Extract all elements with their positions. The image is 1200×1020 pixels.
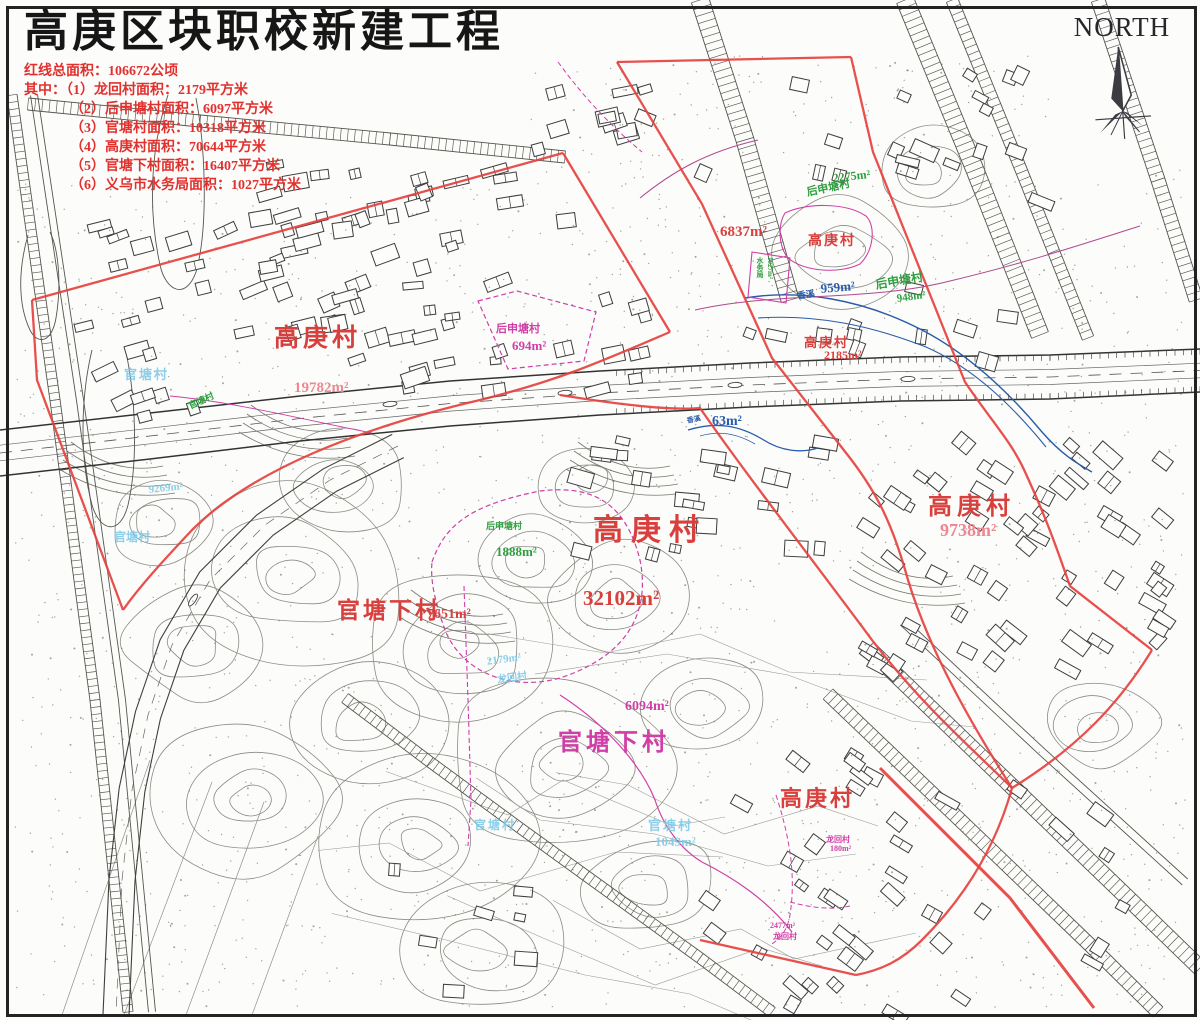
map-label: 1027m² <box>766 257 774 279</box>
map-label: 2185m² <box>824 348 862 363</box>
map-label: 9738m² <box>940 520 996 541</box>
legend-item: （2）后申塘村面积：6097平方米 <box>24 100 544 119</box>
map-label: 32102m² <box>583 586 659 611</box>
map-label: 水务局 <box>755 257 765 278</box>
legend-item: （5）官塘下村面积：16407平方米 <box>24 157 544 176</box>
map-label: 龙回村 <box>773 931 797 942</box>
map-label: 官塘村 <box>114 528 150 545</box>
legend-total: 红线总面积：106672公顷 <box>24 62 544 81</box>
map-label: 高庚村 <box>274 318 361 354</box>
map-label: 高庚村 <box>928 486 1015 521</box>
map-label: 6094m² <box>625 699 669 715</box>
legend-item: （4）高庚村面积：70644平方米 <box>24 138 544 157</box>
map-label: 官塘下村 <box>558 722 670 757</box>
map-label: 63m² <box>712 414 742 430</box>
map-label: 高庚村 <box>593 505 707 549</box>
page-title: 高庚区块职校新建工程 <box>24 8 544 56</box>
map-label: 19782m² <box>294 380 349 397</box>
map-label: 1888m² <box>496 544 537 560</box>
map-label: 694m² <box>512 338 546 354</box>
map-label: 959m² <box>820 278 855 297</box>
legend-item: （6）义乌市水务局面积：1027平方米 <box>24 176 544 195</box>
map-label: 官塘村 <box>648 815 693 834</box>
map-label: 高庚村 <box>780 781 855 813</box>
map-label: 后申塘村 <box>486 519 522 532</box>
map-sheet: 高庚区块职校新建工程 红线总面积：106672公顷 其中：（1）龙回村面积：21… <box>0 0 1200 1020</box>
north-compass-icon <box>1083 43 1161 139</box>
map-label: 官塘村 <box>124 364 169 383</box>
map-label: 后申塘村 <box>496 320 540 336</box>
legend-item: （3）官塘村面积：10318平方米 <box>24 119 544 138</box>
title-block: 高庚区块职校新建工程 红线总面积：106672公顷 其中：（1）龙回村面积：21… <box>24 8 544 195</box>
legend: 红线总面积：106672公顷 其中：（1）龙回村面积：2179平方米（2）后申塘… <box>24 62 544 195</box>
map-label: 180m² <box>830 844 851 853</box>
map-label: 6837m² <box>720 224 767 241</box>
map-label: 高庚村 <box>808 230 856 250</box>
map-label: 官塘村 <box>474 816 516 833</box>
map-label: 1049m² <box>655 834 696 850</box>
north-label: NORTH <box>1062 12 1182 43</box>
north-indicator: NORTH <box>1062 12 1182 144</box>
map-label: 2477m² <box>770 921 795 930</box>
map-label: 官塘下村 <box>337 591 441 625</box>
map-label: 香溪 <box>796 286 816 301</box>
legend-item: 其中：（1）龙回村面积：2179平方米 <box>24 81 544 100</box>
map-label: 7651m² <box>427 607 471 623</box>
